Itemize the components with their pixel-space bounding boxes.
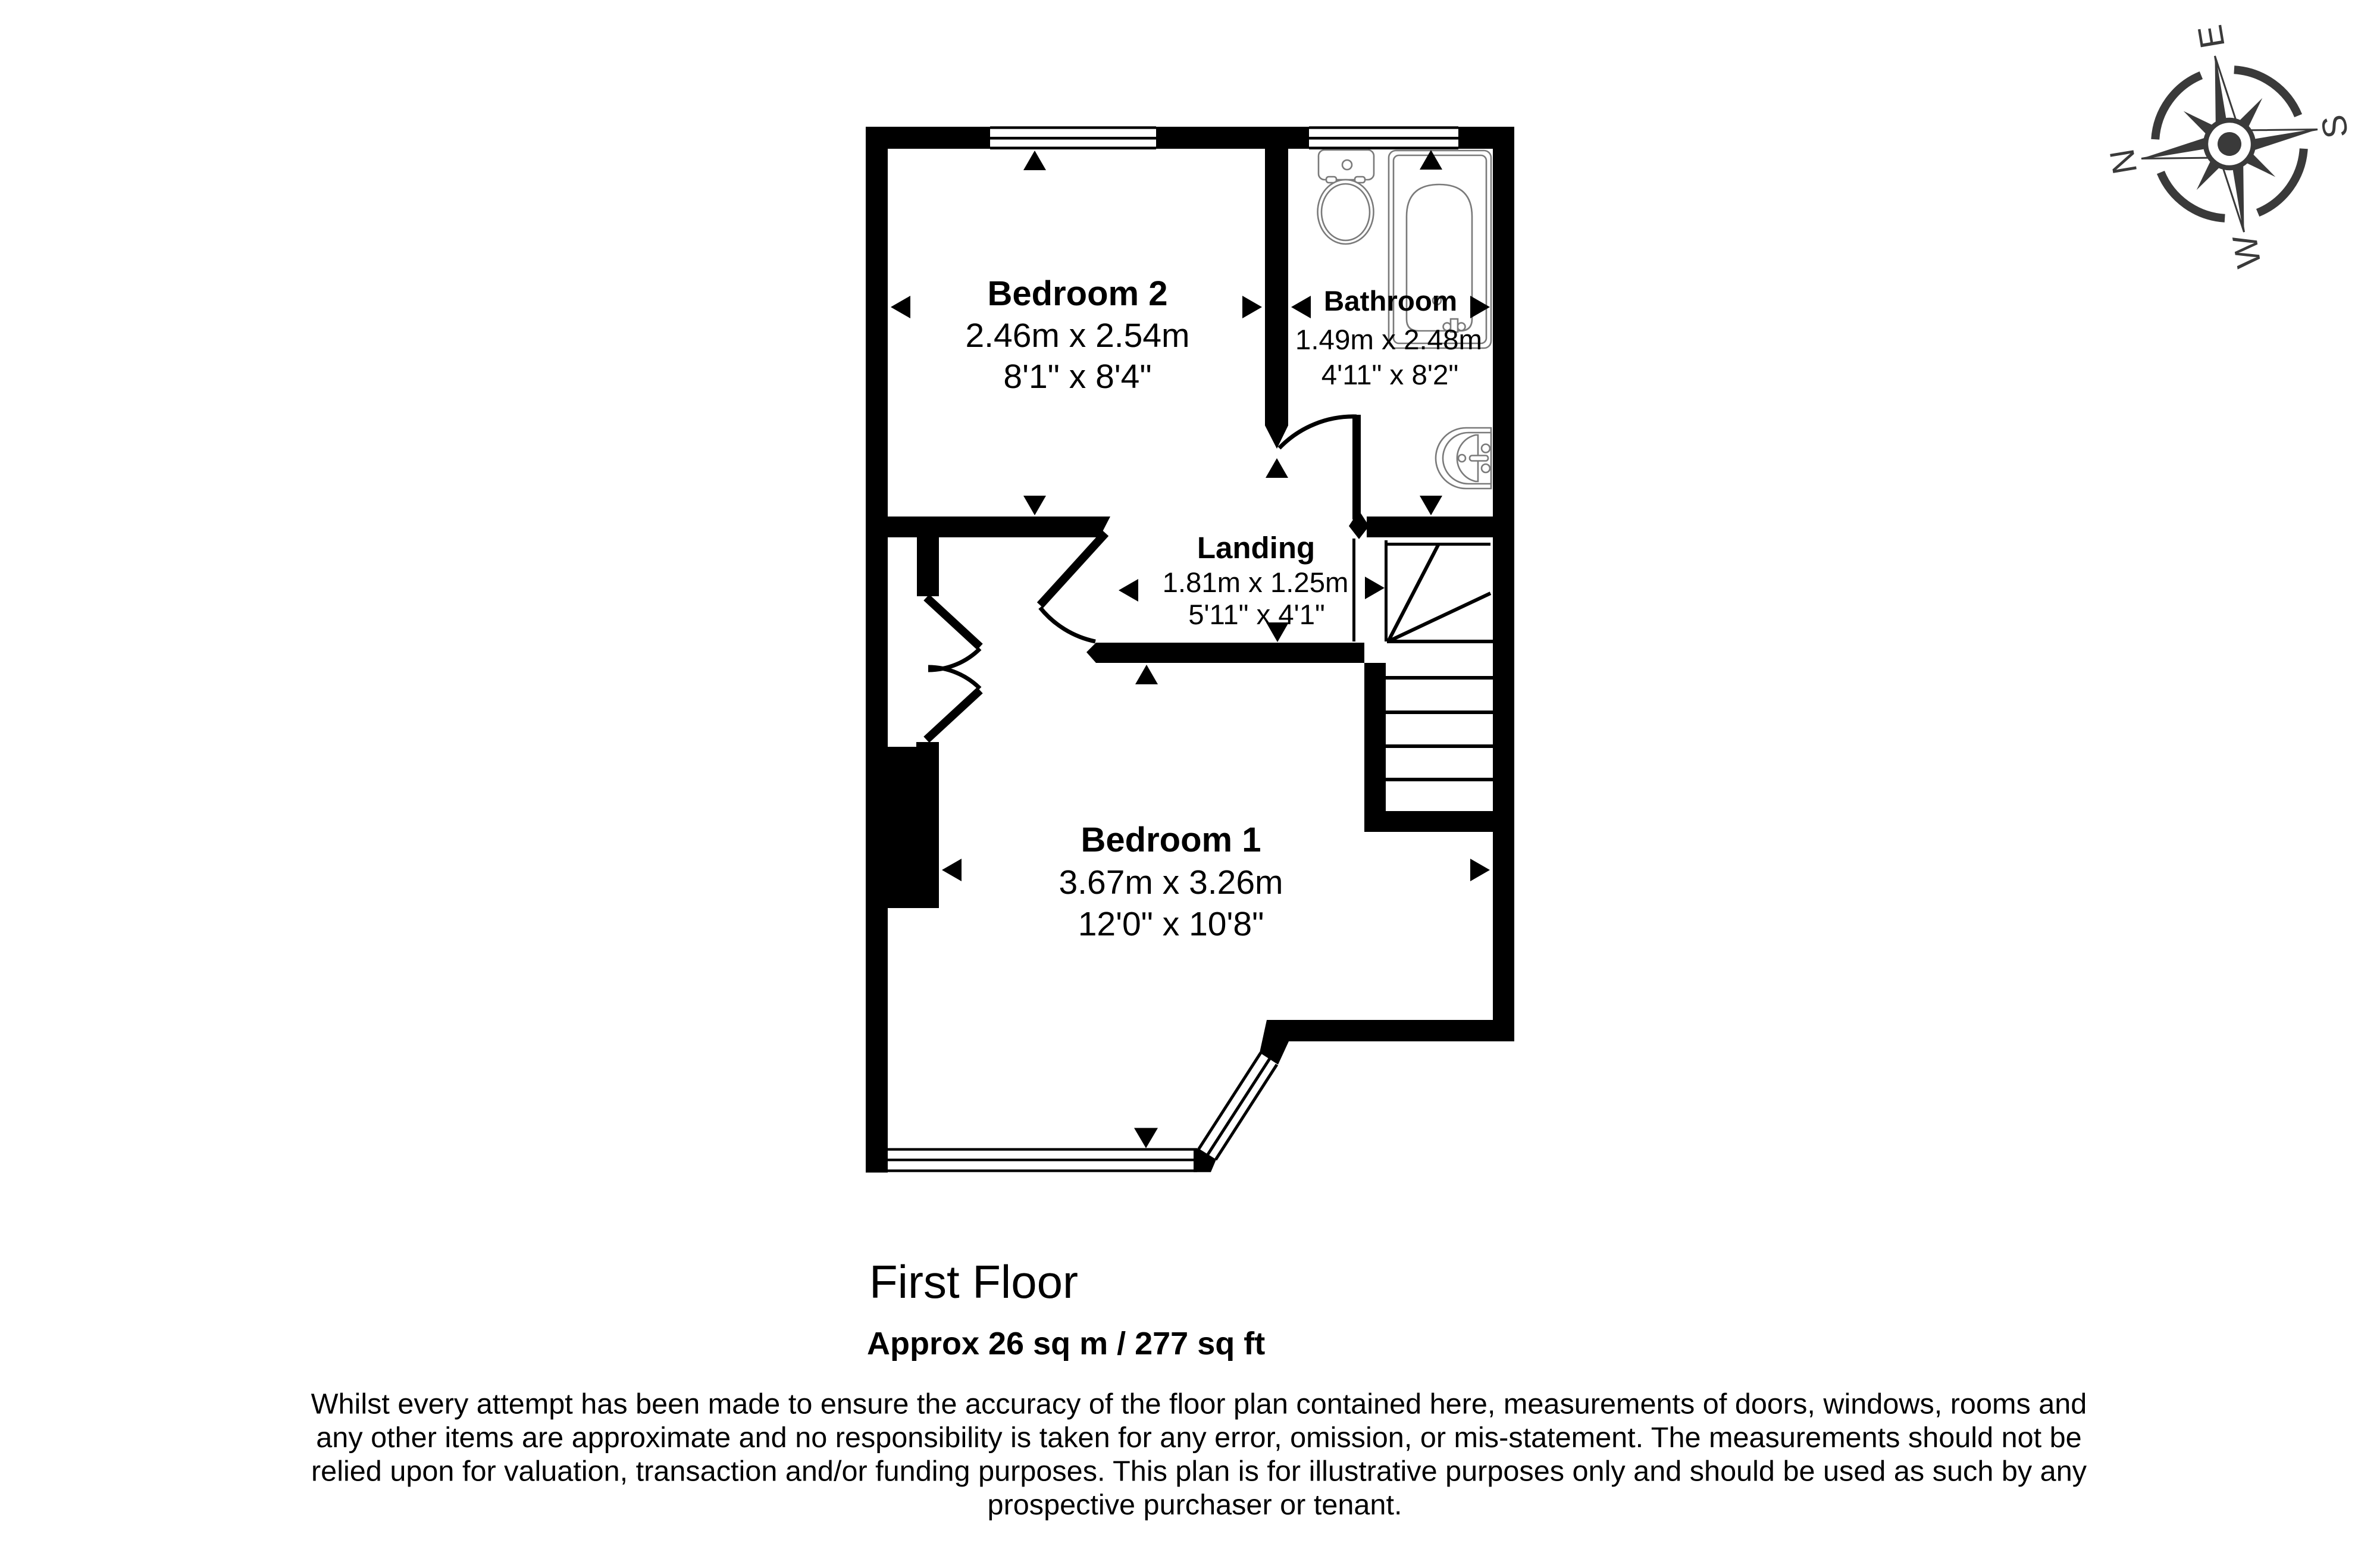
svg-text:any other items are approximat: any other items are approximate and no r… bbox=[316, 1422, 2081, 1454]
svg-text:Landing: Landing bbox=[1197, 531, 1315, 565]
svg-text:1.49m x 2.48m: 1.49m x 2.48m bbox=[1295, 324, 1482, 356]
svg-text:2.46m x 2.54m: 2.46m x 2.54m bbox=[965, 317, 1189, 355]
svg-text:W: W bbox=[2225, 232, 2269, 271]
svg-text:Bathroom: Bathroom bbox=[1324, 286, 1457, 317]
svg-text:12'0" x 10'8": 12'0" x 10'8" bbox=[1078, 905, 1264, 943]
svg-text:Whilst every attempt has been: Whilst every attempt has been made to en… bbox=[311, 1388, 2087, 1420]
svg-text:prospective purchaser or tenan: prospective purchaser or tenant. bbox=[988, 1489, 1402, 1521]
svg-text:relied upon for valuation, tra: relied upon for valuation, transaction a… bbox=[311, 1456, 2087, 1488]
svg-text:S: S bbox=[2314, 112, 2356, 141]
svg-text:5'11" x 4'1": 5'11" x 4'1" bbox=[1188, 599, 1325, 631]
svg-text:Bedroom 2: Bedroom 2 bbox=[988, 274, 1168, 313]
svg-text:1.81m x 1.25m: 1.81m x 1.25m bbox=[1163, 567, 1349, 599]
svg-text:4'11" x 8'2": 4'11" x 8'2" bbox=[1321, 359, 1459, 391]
svg-text:Approx 26 sq m / 277 sq ft: Approx 26 sq m / 277 sq ft bbox=[867, 1326, 1265, 1361]
svg-text:3.67m x 3.26m: 3.67m x 3.26m bbox=[1059, 863, 1283, 902]
svg-text:N: N bbox=[2102, 146, 2144, 177]
svg-text:8'1" x 8'4": 8'1" x 8'4" bbox=[1003, 358, 1151, 396]
svg-text:E: E bbox=[2190, 22, 2232, 51]
svg-text:First Floor: First Floor bbox=[869, 1256, 1078, 1308]
svg-text:Bedroom 1: Bedroom 1 bbox=[1081, 821, 1261, 859]
